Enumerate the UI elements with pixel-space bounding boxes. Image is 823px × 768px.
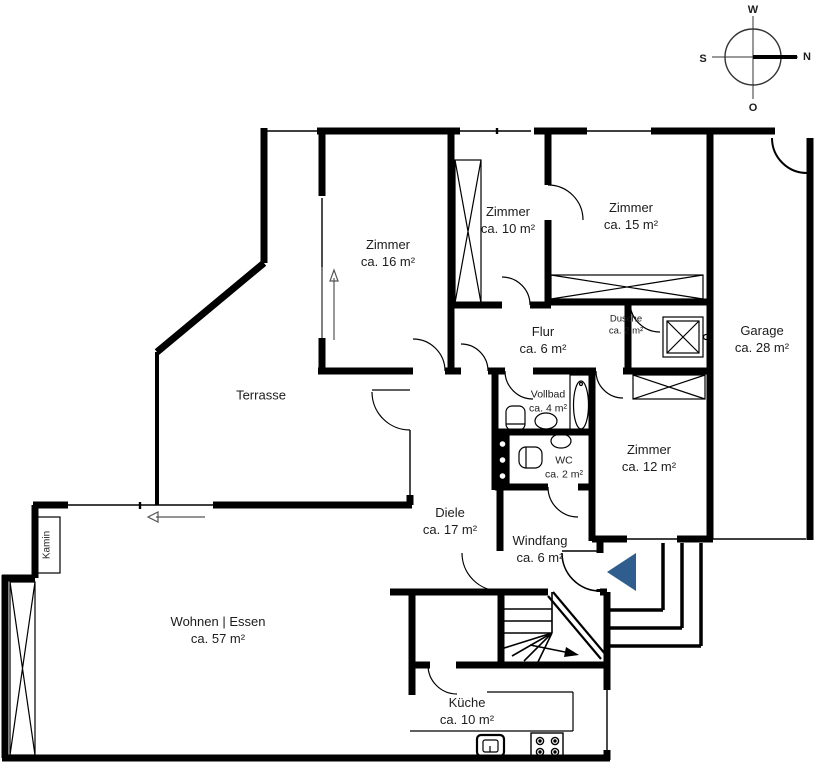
radiator-icon <box>496 436 509 485</box>
walls <box>2 128 810 760</box>
shower-icon <box>663 317 709 357</box>
entrance-steps <box>604 543 701 646</box>
room-label-terrasse: Terrasse <box>236 386 286 403</box>
floorplan: Zimmerca. 16 m² Zimmerca. 10 m² Zimmerca… <box>0 0 823 768</box>
room-label-flur: Flurca. 6 m² <box>520 323 567 357</box>
room-label-garage: Garageca. 28 m² <box>735 322 789 356</box>
compass-rose <box>712 16 798 99</box>
entrance-arrow-icon <box>607 553 636 591</box>
toilet-wc-icon <box>519 447 542 468</box>
room-label-zimmer12: Zimmerca. 12 m² <box>622 441 676 475</box>
door-z10 <box>502 277 530 305</box>
room-label-diele: Dieleca. 17 m² <box>423 504 477 538</box>
room-label-kueche: Kücheca. 10 m² <box>440 694 494 728</box>
room-label-dusche: Duscheca. 2 m² <box>609 314 643 339</box>
room-label-zimmer10: Zimmerca. 10 m² <box>481 203 535 237</box>
door-garage <box>772 138 808 173</box>
door-flur <box>461 344 488 371</box>
door-terrace <box>372 390 410 430</box>
door-z16 <box>413 339 445 371</box>
kitchen-sink-icon <box>477 735 504 756</box>
room-label-windfang: Windfangca. 6 m² <box>513 532 568 566</box>
door-z15 <box>548 185 583 220</box>
wardrobe-z12-icon <box>633 375 705 399</box>
wardrobe-z10-icon <box>455 160 481 303</box>
door-wc <box>548 487 578 517</box>
builtin-cupboard-icon <box>10 582 35 755</box>
wall-stair <box>501 592 607 760</box>
door-kueche <box>428 665 457 694</box>
toilet-vollbad-icon <box>506 406 525 430</box>
room-label-zimmer15: Zimmerca. 15 m² <box>604 199 658 233</box>
floorplan-drawing <box>0 0 823 768</box>
kamin-label: Kamin <box>42 531 53 559</box>
compass-label-w: W <box>748 4 758 16</box>
wall-terrace <box>157 128 264 352</box>
room-label-zimmer16: Zimmerca. 16 m² <box>361 236 415 270</box>
sink-wc-icon <box>551 434 571 448</box>
room-label-wohnen: Wohnen | Essenca. 57 m² <box>171 613 266 647</box>
stair-rail <box>548 592 606 659</box>
room-label-wc: WCca. 2 m² <box>545 454 583 481</box>
windows <box>68 128 806 750</box>
wardrobe-z15-icon <box>551 275 703 299</box>
staircase <box>501 592 606 664</box>
room-label-vollbad: Vollbadca. 4 m² <box>529 388 567 415</box>
door-z12 <box>596 371 623 398</box>
compass-label-n: N <box>803 51 811 63</box>
compass-label-o: O <box>749 102 758 114</box>
door-main-entrance <box>562 551 600 591</box>
door-windfang-diele <box>462 553 500 591</box>
compass-label-s: S <box>699 53 706 65</box>
